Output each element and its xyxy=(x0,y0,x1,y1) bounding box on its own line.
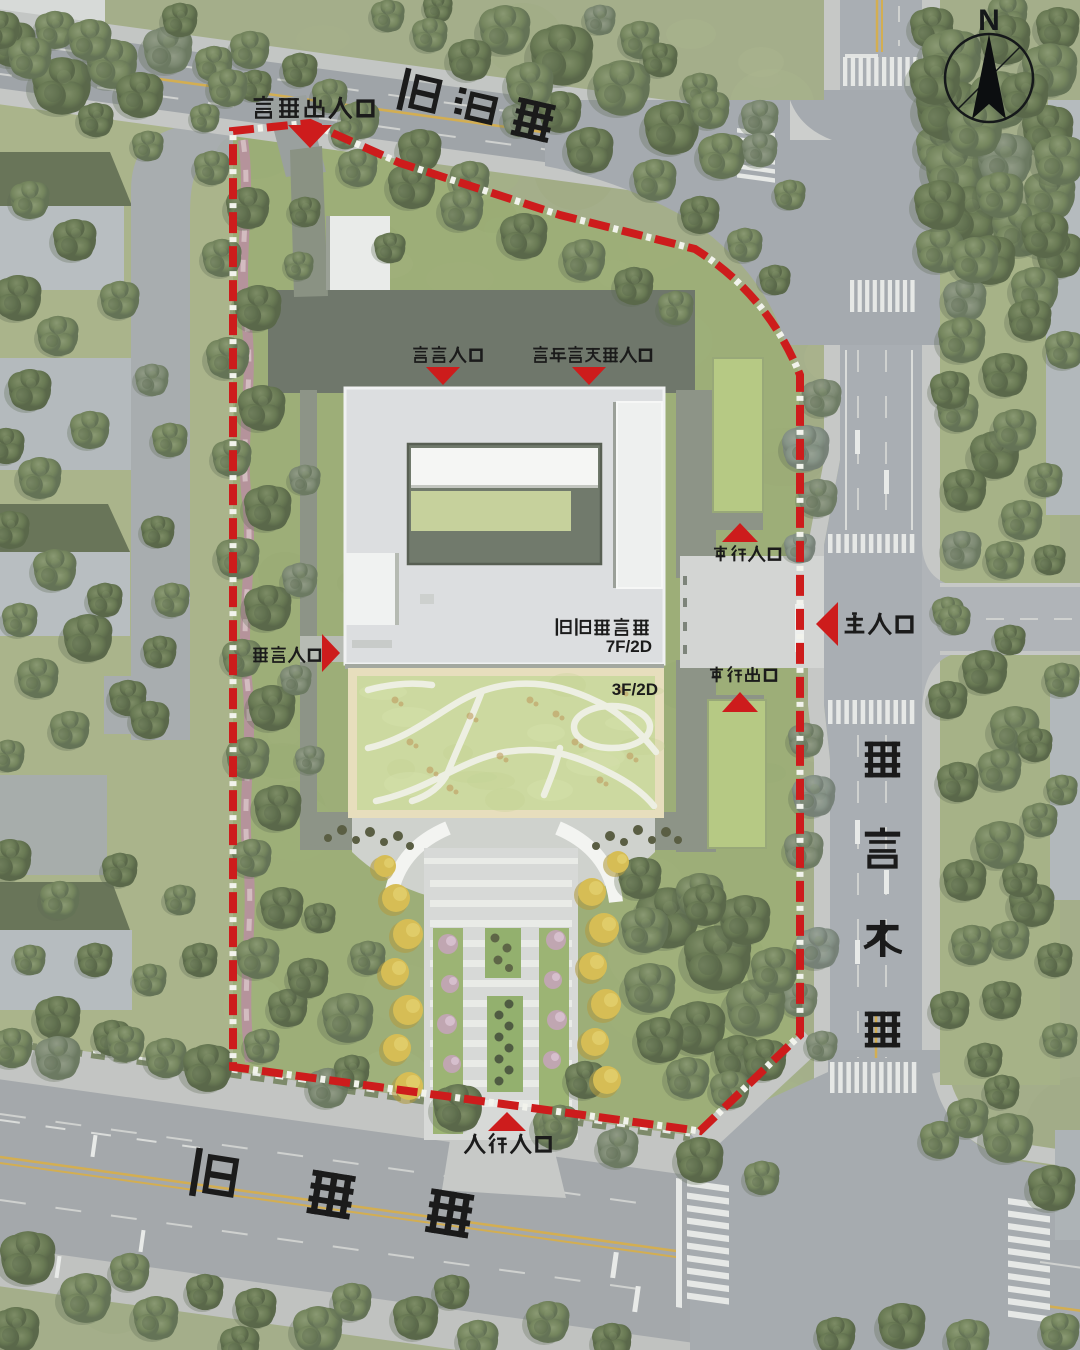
svg-text:N: N xyxy=(978,4,1000,37)
svg-text:3F/2D: 3F/2D xyxy=(612,680,658,699)
svg-text:7F/2D: 7F/2D xyxy=(606,637,652,656)
